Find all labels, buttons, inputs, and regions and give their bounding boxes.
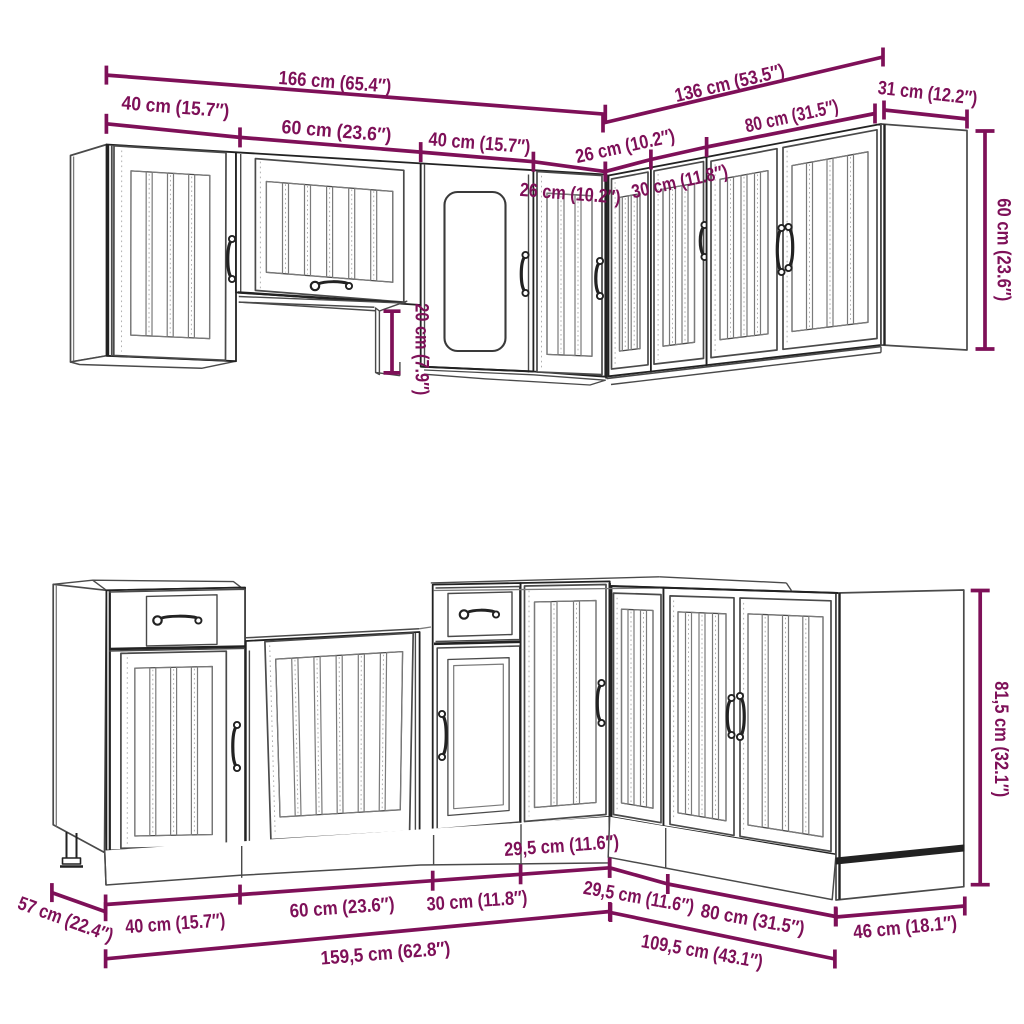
svg-text:159,5 cm (62.8″): 159,5 cm (62.8″) [320,938,451,969]
svg-text:57 cm (22.4″): 57 cm (22.4″) [15,893,116,947]
svg-text:20 cm (7.9″): 20 cm (7.9″) [411,303,432,395]
svg-text:40 cm (15.7″): 40 cm (15.7″) [125,910,226,938]
svg-text:40 cm (15.7″): 40 cm (15.7″) [121,93,230,122]
svg-text:31 cm (12.2″): 31 cm (12.2″) [877,78,979,110]
svg-text:60 cm (23.6″): 60 cm (23.6″) [993,198,1014,301]
svg-text:26 cm (10.2″): 26 cm (10.2″) [574,126,677,168]
svg-text:81,5 cm (32.1″): 81,5 cm (32.1″) [990,681,1011,797]
svg-text:109,5 cm (43.1″): 109,5 cm (43.1″) [640,931,765,973]
svg-text:136 cm (53.5″): 136 cm (53.5″) [673,61,787,107]
svg-text:46 cm (18.1″): 46 cm (18.1″) [852,913,958,944]
svg-text:30 cm (11.8″): 30 cm (11.8″) [426,888,528,916]
svg-text:60 cm (23.6″): 60 cm (23.6″) [289,894,395,922]
svg-text:166 cm (65.4″): 166 cm (65.4″) [278,68,392,98]
